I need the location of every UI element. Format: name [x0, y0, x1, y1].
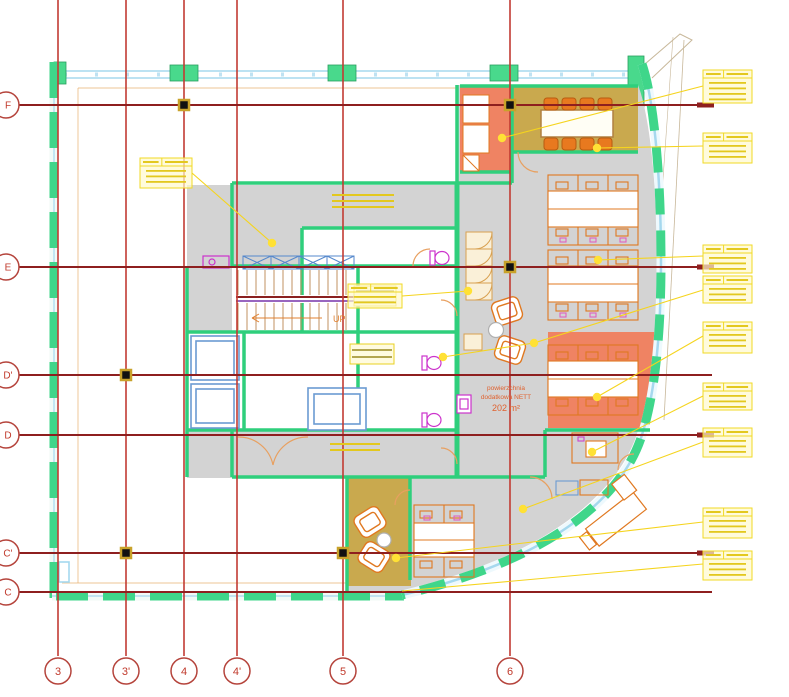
floor-plan-drawing: 33'44'56FED'DC'C UP powierzchnia dodatko… — [0, 0, 789, 697]
annotation-text-line — [709, 288, 746, 290]
annotation-text-line — [709, 156, 746, 158]
annotation-text-line — [706, 554, 721, 556]
leader-dot — [588, 448, 596, 456]
grid-bubble-label-E: E — [5, 263, 12, 274]
grid-bubble-label-D: D — [4, 431, 11, 442]
annotation-text-line — [727, 511, 749, 513]
annotation-text-line — [709, 401, 746, 403]
area-note-line3: 202 m² — [492, 403, 520, 413]
leader-dot — [519, 505, 527, 513]
annotation-text-line — [706, 511, 721, 513]
grid-bubble-label-3': 3' — [122, 666, 130, 678]
annotation-text-line — [330, 443, 380, 445]
annotation-text-line — [146, 181, 186, 183]
grid-bubble-label-C': C' — [3, 549, 12, 560]
annotation-text-line — [709, 93, 746, 95]
annotation-text-line — [709, 88, 746, 90]
annotation-text-line — [706, 325, 721, 327]
mullion-block — [328, 65, 356, 81]
annotation-text-line — [332, 200, 394, 202]
annotation-text-line — [146, 176, 186, 178]
annotation-text-line — [709, 526, 746, 528]
leader-dot — [392, 554, 400, 562]
grid-bubble-label-C: C — [4, 588, 11, 599]
annotation-text-line — [709, 263, 746, 265]
grid-bubble-label-D': D' — [3, 371, 12, 382]
annotation-text-line — [354, 296, 396, 298]
annotation-text-line — [709, 257, 746, 259]
annotation-text-line — [706, 279, 721, 281]
annotation-text-line — [727, 386, 749, 388]
leader-dot — [268, 239, 276, 247]
coffee-table — [377, 533, 391, 547]
annotation-text-line — [706, 386, 721, 388]
mullion-block — [490, 65, 518, 81]
annotation-text-line — [706, 431, 721, 433]
leader-dot — [439, 353, 447, 361]
leader-dot — [498, 134, 506, 142]
grid-bubble-label-F: F — [5, 101, 11, 112]
annotation-text-line — [709, 268, 746, 270]
leader-dot — [593, 144, 601, 152]
annotation-text-line — [709, 563, 746, 565]
up-label: UP — [333, 314, 346, 324]
annotation-text-line — [709, 406, 746, 408]
annotation-text-line — [709, 440, 746, 442]
annotation-text-line — [330, 449, 380, 451]
grid-bubble-label-6: 6 — [507, 666, 513, 678]
column-marker — [179, 100, 189, 110]
area-note-line1: powierzchnia — [487, 385, 525, 392]
annotation-text-line — [709, 520, 746, 522]
annotation-text-line — [706, 248, 721, 250]
annotation-text-line — [332, 206, 394, 208]
annotation-text-line — [709, 574, 746, 576]
leader-dot — [464, 287, 472, 295]
annotation-text-line — [351, 287, 367, 289]
annotation-text-line — [709, 99, 746, 101]
annotation-text-line — [709, 82, 746, 84]
annotation-text-line — [709, 145, 746, 147]
annotation-text-line — [727, 554, 749, 556]
annotation-text-line — [165, 161, 188, 163]
annotation-text-line — [709, 569, 746, 571]
annotation-text-line — [332, 194, 394, 196]
grid-bubble-label-3: 3 — [55, 666, 61, 678]
annotation-text-line — [706, 73, 721, 75]
annotation-text-line — [727, 279, 749, 281]
leader-dot — [593, 393, 601, 401]
annotation-text-line — [709, 446, 746, 448]
annotation-text-line — [146, 170, 186, 172]
coffee-table — [489, 323, 504, 338]
column-marker — [121, 370, 131, 380]
annotation-text-line — [727, 431, 749, 433]
column-marker — [121, 548, 131, 558]
annotation-text-line — [709, 451, 746, 453]
annotation-text-line — [709, 531, 746, 533]
conference-table — [541, 110, 613, 137]
annotation-text-line — [727, 73, 749, 75]
leader-dot — [594, 256, 602, 264]
annotation-text-line — [727, 248, 749, 250]
annotation-text-line — [709, 345, 746, 347]
column-marker — [505, 262, 515, 272]
floor-plan-canvas: 33'44'56FED'DC'C UP powierzchnia dodatko… — [0, 0, 789, 697]
grid-bubble-label-4: 4 — [181, 666, 187, 678]
annotation-text-line — [143, 161, 159, 163]
annotation-text-line — [709, 151, 746, 153]
area-note-line2: dodatkowa NETT — [481, 394, 531, 401]
column-marker — [505, 100, 515, 110]
annotation-text-line — [727, 325, 749, 327]
annotation-text-line — [709, 334, 746, 336]
annotation-text-line — [709, 340, 746, 342]
annotation-text-line — [706, 136, 721, 138]
annotation-text-line — [709, 395, 746, 397]
annotation-text-line — [374, 287, 398, 289]
annotation-text-line — [354, 302, 396, 304]
annotation-text-line — [709, 294, 746, 296]
leader-dot — [530, 339, 538, 347]
annotation-text-line — [709, 299, 746, 301]
grid-bubble-label-4': 4' — [233, 666, 241, 678]
grid-bubble-label-5: 5 — [340, 666, 346, 678]
annotation-text-line — [727, 136, 749, 138]
column-marker — [338, 548, 348, 558]
